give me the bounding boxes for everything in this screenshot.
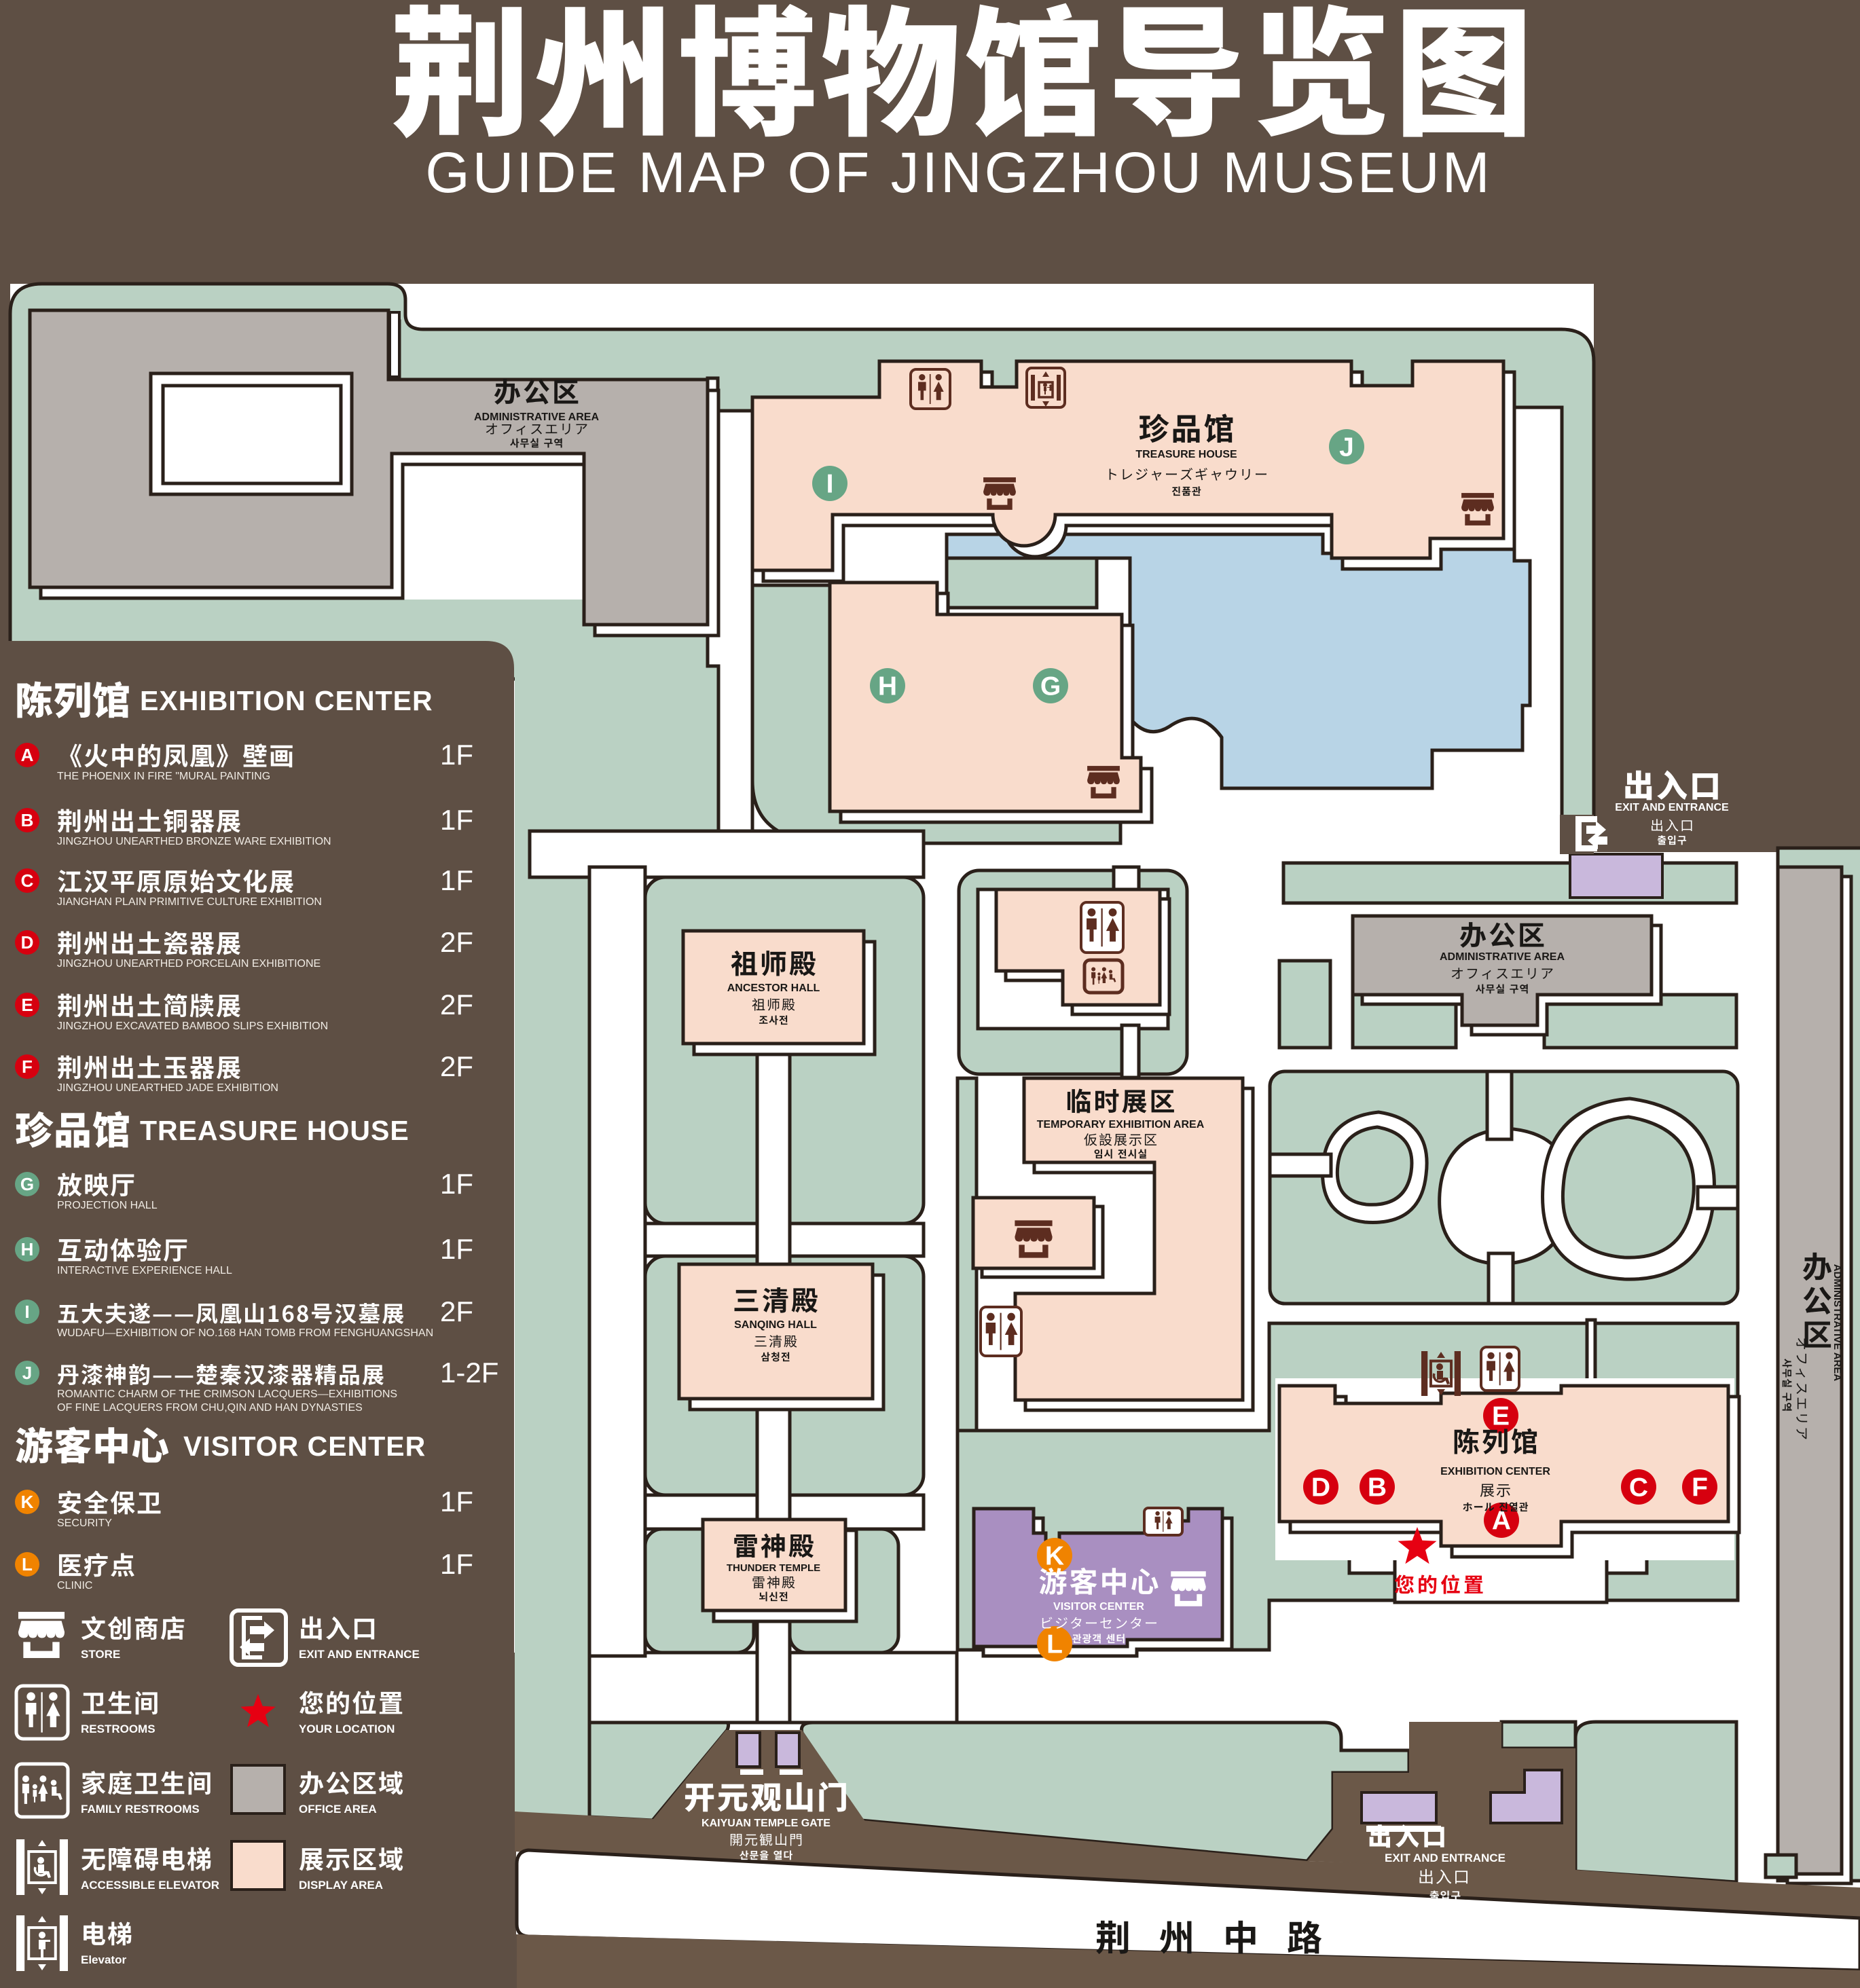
svg-text:EXHIBITION CENTER: EXHIBITION CENTER xyxy=(1440,1466,1550,1477)
svg-text:1F: 1F xyxy=(440,1486,473,1517)
svg-text:EXIT AND ENTRANCE: EXIT AND ENTRANCE xyxy=(1385,1852,1506,1864)
svg-text:I: I xyxy=(826,470,834,499)
svg-text:G: G xyxy=(1040,672,1061,701)
svg-text:H: H xyxy=(21,1239,34,1259)
svg-text:B: B xyxy=(21,810,34,830)
svg-text:ANCESTOR HALL: ANCESTOR HALL xyxy=(727,982,820,994)
svg-text:FAMILY RESTROOMS: FAMILY RESTROOMS xyxy=(81,1803,200,1816)
svg-text:OF FINE LACQUERS FROM CHU,QIN: OF FINE LACQUERS FROM CHU,QIN AND HAN DY… xyxy=(57,1402,363,1414)
svg-text:SANQING HALL: SANQING HALL xyxy=(734,1319,817,1331)
svg-text:JIANGHAN PLAIN PRIMITIVE CULTU: JIANGHAN PLAIN PRIMITIVE CULTURE EXHIBIT… xyxy=(57,896,322,908)
svg-text:RESTROOMS: RESTROOMS xyxy=(81,1723,156,1735)
svg-text:2F: 2F xyxy=(440,989,473,1020)
svg-text:K: K xyxy=(21,1492,34,1512)
svg-text:1F: 1F xyxy=(440,1168,473,1200)
svg-text:EXHIBITION CENTER: EXHIBITION CENTER xyxy=(140,685,433,716)
svg-text:OFFICE AREA: OFFICE AREA xyxy=(299,1803,377,1816)
svg-text:J: J xyxy=(1339,433,1354,462)
svg-text:ADMINISTRATIVE AREA: ADMINISTRATIVE AREA xyxy=(474,411,599,423)
svg-text:SECURITY: SECURITY xyxy=(57,1517,112,1529)
svg-text:2F: 2F xyxy=(440,1295,473,1327)
svg-text:K: K xyxy=(1045,1542,1064,1571)
svg-text:H: H xyxy=(878,672,897,701)
svg-text:1-2F: 1-2F xyxy=(440,1357,498,1388)
svg-text:VISITOR CENTER: VISITOR CENTER xyxy=(1053,1601,1144,1613)
svg-text:GUIDE MAP OF JINGZHOU MUSEUM: GUIDE MAP OF JINGZHOU MUSEUM xyxy=(425,141,1492,204)
svg-text:L: L xyxy=(1046,1630,1063,1659)
svg-text:E: E xyxy=(1492,1402,1510,1431)
svg-text:1F: 1F xyxy=(440,1548,473,1580)
svg-text:EXIT AND ENTRANCE: EXIT AND ENTRANCE xyxy=(1615,802,1729,813)
svg-text:ADMINISTRATIVE AREA: ADMINISTRATIVE AREA xyxy=(1440,951,1565,963)
svg-text:PROJECTION HALL: PROJECTION HALL xyxy=(57,1200,158,1211)
svg-text:B: B xyxy=(1368,1473,1387,1503)
svg-text:JINGZHOU UNEARTHED BRONZE WARE: JINGZHOU UNEARTHED BRONZE WARE EXHIBITIO… xyxy=(57,836,331,847)
svg-text:C: C xyxy=(1629,1473,1648,1503)
svg-text:1F: 1F xyxy=(440,864,473,896)
svg-text:STORE: STORE xyxy=(81,1648,120,1661)
svg-text:I: I xyxy=(24,1302,29,1322)
svg-text:ACCESSIBLE ELEVATOR: ACCESSIBLE ELEVATOR xyxy=(81,1879,219,1892)
svg-text:D: D xyxy=(1311,1473,1330,1503)
svg-text:CLINIC: CLINIC xyxy=(57,1580,92,1591)
svg-text:2F: 2F xyxy=(440,926,473,958)
svg-text:THE PHOENIX IN FIRE "MURAL PAI: THE PHOENIX IN FIRE "MURAL PAINTING xyxy=(57,771,270,782)
svg-text:TEMPORARY EXHIBITION AREA: TEMPORARY EXHIBITION AREA xyxy=(1037,1119,1205,1130)
svg-text:G: G xyxy=(20,1174,34,1194)
svg-text:JINGZHOU EXCAVATED BAMBOO SLIP: JINGZHOU EXCAVATED BAMBOO SLIPS EXHIBITI… xyxy=(57,1020,328,1032)
svg-text:1F: 1F xyxy=(440,1233,473,1265)
svg-text:VISITOR CENTER: VISITOR CENTER xyxy=(183,1431,426,1462)
svg-text:TREASURE HOUSE: TREASURE HOUSE xyxy=(140,1115,409,1146)
svg-text:L: L xyxy=(22,1554,33,1575)
svg-text:1F: 1F xyxy=(440,739,473,771)
svg-text:C: C xyxy=(21,870,34,891)
svg-text:A: A xyxy=(21,745,34,765)
svg-text:2F: 2F xyxy=(440,1050,473,1082)
svg-text:J: J xyxy=(22,1363,32,1383)
svg-text:INTERACTIVE EXPERIENCE HALL: INTERACTIVE EXPERIENCE HALL xyxy=(57,1265,232,1276)
svg-text:E: E xyxy=(21,995,33,1015)
svg-text:DISPLAY AREA: DISPLAY AREA xyxy=(299,1879,383,1892)
svg-text:YOUR LOCATION: YOUR LOCATION xyxy=(299,1723,395,1735)
svg-text:Elevator: Elevator xyxy=(81,1953,126,1966)
svg-text:1F: 1F xyxy=(440,804,473,836)
svg-text:KAIYUAN TEMPLE GATE: KAIYUAN TEMPLE GATE xyxy=(701,1818,831,1829)
svg-text:WUDAFU—EXHIBITION OF NO.168 HA: WUDAFU—EXHIBITION OF NO.168 HAN TOMB FRO… xyxy=(57,1327,433,1339)
svg-text:EXIT AND ENTRANCE: EXIT AND ENTRANCE xyxy=(299,1648,420,1661)
svg-text:F: F xyxy=(1692,1473,1708,1503)
svg-text:D: D xyxy=(21,932,34,953)
svg-text:JINGZHOU UNEARTHED PORCELAIN E: JINGZHOU UNEARTHED PORCELAIN EXHIBITIONE xyxy=(57,958,321,970)
svg-text:ADMINISTRATIVE AREA: ADMINISTRATIVE AREA xyxy=(1831,1264,1843,1382)
svg-text:THUNDER TEMPLE: THUNDER TEMPLE xyxy=(727,1562,820,1574)
svg-text:TREASURE HOUSE: TREASURE HOUSE xyxy=(1135,449,1237,460)
svg-text:F: F xyxy=(22,1056,33,1077)
svg-text:JINGZHOU UNEARTHED JADE EXHIBI: JINGZHOU UNEARTHED JADE EXHIBITION xyxy=(57,1082,278,1094)
svg-text:ROMANTIC CHARM OF THE CRIMSON: ROMANTIC CHARM OF THE CRIMSON LACQUERS—E… xyxy=(57,1388,397,1400)
